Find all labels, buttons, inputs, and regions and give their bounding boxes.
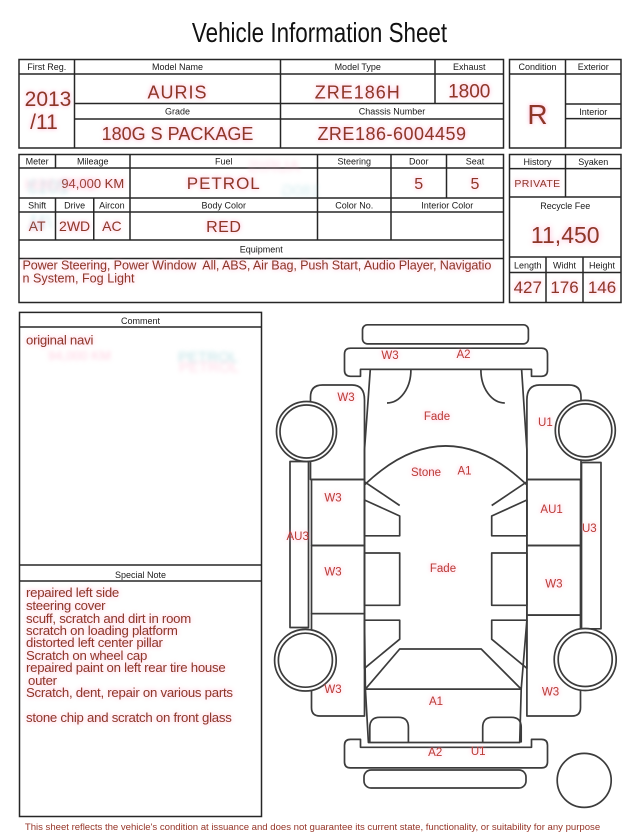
svg-text:A1: A1 [429, 696, 443, 708]
svg-text:5: 5 [414, 176, 423, 193]
svg-text:PRIVATE: PRIVATE [514, 178, 560, 190]
svg-text:AC: AC [102, 218, 121, 234]
svg-text:180G S PACKAGE: 180G S PACKAGE [102, 124, 254, 144]
svg-text:Model Name: Model Name [152, 62, 203, 72]
svg-text:Exhaust: Exhaust [453, 62, 486, 72]
svg-text:Fade: Fade [430, 563, 456, 575]
svg-text:5: 5 [471, 176, 480, 193]
svg-text:A1: A1 [457, 466, 471, 478]
svg-text:W3: W3 [324, 567, 341, 579]
svg-text:Special Note: Special Note [115, 570, 166, 580]
svg-text:Drive: Drive [64, 201, 85, 211]
svg-text:PETROL: PETROL [187, 174, 261, 193]
svg-text:1800: 1800 [448, 82, 490, 103]
svg-text:AURIS: AURIS [248, 157, 300, 176]
svg-text:W3: W3 [324, 493, 341, 505]
svg-text:Syaken: Syaken [578, 157, 608, 167]
svg-text:2013: 2013 [25, 88, 72, 111]
svg-text:Body Color: Body Color [201, 201, 246, 211]
svg-text:A2: A2 [428, 747, 442, 759]
svg-text:Widht: Widht [553, 261, 577, 271]
svg-text:2WD: 2WD [59, 218, 90, 234]
svg-text:Vehicle Information Sheet: Vehicle Information Sheet [192, 18, 447, 49]
svg-text:180G: 180G [281, 183, 320, 200]
svg-text:W3: W3 [381, 350, 398, 362]
svg-text:PETROL: PETROL [179, 359, 239, 376]
svg-text:Exterior: Exterior [578, 62, 609, 72]
svg-text:ZRE186H: ZRE186H [315, 83, 401, 103]
svg-text:Door: Door [409, 157, 429, 167]
svg-text:Comment: Comment [121, 316, 161, 326]
svg-text:Steering: Steering [337, 157, 371, 167]
svg-text:Color No.: Color No. [335, 201, 373, 211]
svg-text:Equipment: Equipment [240, 245, 284, 255]
svg-text:Fuel: Fuel [215, 157, 233, 167]
svg-text:Model Type: Model Type [335, 62, 381, 72]
svg-text:Length: Length [514, 261, 542, 271]
svg-text:11,450: 11,450 [531, 222, 600, 248]
svg-text:R: R [527, 99, 547, 130]
svg-text:Fade: Fade [424, 411, 450, 423]
svg-text:Stone: Stone [411, 467, 441, 479]
svg-text:Seat: Seat [466, 157, 485, 167]
svg-text:U3: U3 [582, 523, 597, 535]
svg-text:Recycle Fee: Recycle Fee [540, 201, 590, 211]
svg-text:Interior: Interior [579, 107, 607, 117]
svg-text:This sheet reflects the vehicl: This sheet reflects the vehicle's condit… [25, 822, 600, 833]
svg-text:AU3: AU3 [287, 531, 309, 543]
svg-text:/11: /11 [30, 111, 58, 134]
svg-text:W3: W3 [542, 686, 559, 698]
svg-text:Shift: Shift [28, 201, 47, 211]
svg-text:Mileage: Mileage [77, 157, 109, 167]
svg-text:History: History [523, 157, 552, 167]
svg-text:176: 176 [550, 278, 578, 297]
svg-text:Aircon: Aircon [99, 201, 125, 211]
svg-text:W3: W3 [337, 392, 354, 404]
svg-text:n System, Fog Light: n System, Fog Light [23, 272, 135, 286]
svg-text:427: 427 [514, 278, 542, 297]
svg-text:AURIS: AURIS [147, 83, 207, 103]
svg-text:U1: U1 [471, 746, 486, 758]
svg-text:Interior Color: Interior Color [421, 201, 473, 211]
svg-text:Height: Height [589, 261, 616, 271]
svg-text:Grade: Grade [165, 107, 190, 117]
svg-text:Condition: Condition [518, 62, 556, 72]
svg-text:ZRE186-6004459: ZRE186-6004459 [317, 124, 466, 144]
svg-text:original navi: original navi [26, 333, 93, 348]
svg-text:Chassis Number: Chassis Number [359, 107, 426, 117]
svg-text:RED: RED [206, 219, 241, 236]
svg-text:A2: A2 [456, 349, 470, 361]
svg-text:94,000 KM: 94,000 KM [48, 348, 111, 363]
svg-text:/11: /11 [28, 212, 52, 232]
svg-text:Meter: Meter [26, 157, 49, 167]
svg-text:AU1: AU1 [540, 504, 562, 516]
svg-text:Power Steering, Power Window: Power Steering, Power Window All, ABS, A… [23, 259, 492, 273]
svg-text:Scratch, dent, repair on vario: Scratch, dent, repair on various parts [26, 685, 233, 700]
svg-text:First Reg.: First Reg. [27, 62, 66, 72]
svg-text:W3: W3 [324, 684, 341, 696]
svg-text:ZRE186H: ZRE186H [25, 177, 95, 194]
svg-text:W3: W3 [545, 578, 562, 590]
svg-text:U1: U1 [538, 417, 553, 429]
svg-text:146: 146 [588, 278, 616, 297]
svg-text:stone chip and scratch on fron: stone chip and scratch on front glass [26, 710, 232, 725]
